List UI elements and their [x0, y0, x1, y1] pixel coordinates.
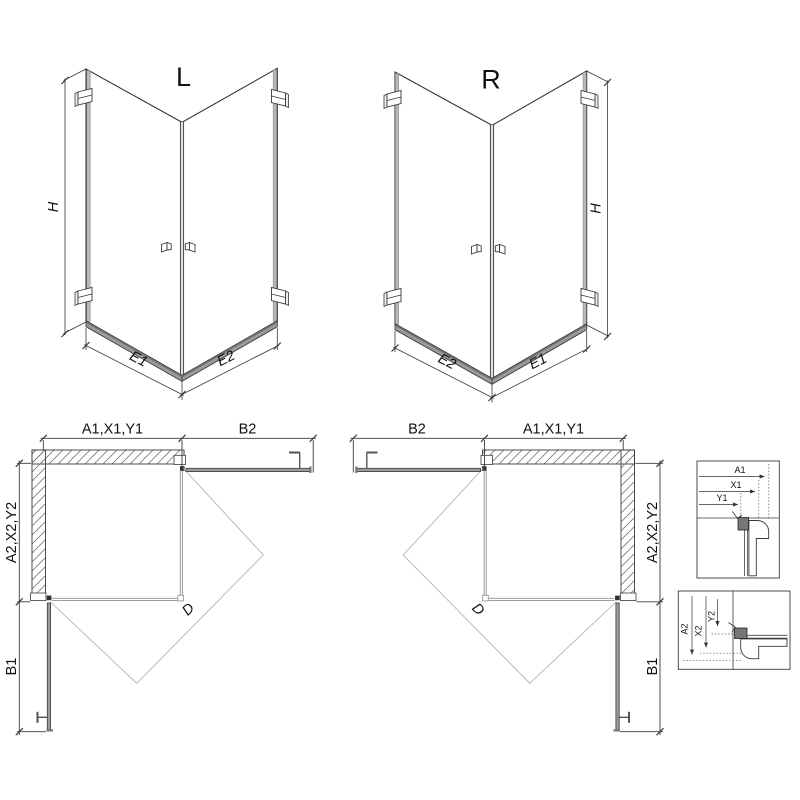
- dim-label-b1: B1: [4, 658, 20, 676]
- view-title-l: L: [176, 62, 191, 92]
- detail-label-y2: Y2: [707, 611, 717, 622]
- wall-right: [621, 450, 635, 597]
- wall-end-cap: [621, 593, 637, 601]
- dim-label-b2: B2: [408, 422, 426, 438]
- iso-right-view: R H E2 E1: [384, 65, 611, 403]
- door-closed-bottom: [489, 598, 615, 600]
- dim-label-h: H: [46, 201, 62, 212]
- corner-seam-profile: [181, 122, 184, 378]
- wall-top: [32, 450, 184, 464]
- door-corner-block: [483, 595, 489, 601]
- view-title-r: R: [481, 65, 501, 95]
- detail-box-top: A1 X1 Y1: [697, 461, 779, 578]
- open-door-b2-endcap: [355, 467, 357, 474]
- wall-end-cap: [31, 593, 47, 601]
- extension-line: [587, 71, 609, 83]
- detail-label-a1: A1: [734, 465, 745, 475]
- wall-profile-left: [395, 74, 398, 325]
- door-handle-b2: [289, 453, 300, 469]
- door-handle-b2: [367, 453, 378, 469]
- door-closed-left: [484, 471, 486, 597]
- open-door-b1-endcap: [614, 729, 621, 731]
- door-closed-bottom: [52, 598, 178, 600]
- plan-left-view: A1,X1,Y1 B2 A2,X2,Y2 B1 D: [4, 422, 317, 736]
- door-handle-b1: [38, 712, 49, 723]
- wall-left: [32, 450, 46, 597]
- wall-top: [483, 450, 635, 464]
- door-pivot: [615, 596, 620, 601]
- clamp-bracket: [735, 628, 748, 639]
- open-door-b1-endcap: [47, 729, 54, 731]
- technical-drawing: L H E1 E2: [0, 0, 800, 800]
- dim-label-b2: B2: [239, 422, 257, 438]
- wall-end-cap: [481, 455, 493, 464]
- open-door-b1: [47, 603, 50, 731]
- plan-right-view: B2 A1,X1,Y1 A2,X2,Y2 B1 D: [350, 422, 664, 736]
- open-door-b1: [616, 603, 619, 731]
- door-swing-outline: [403, 468, 616, 683]
- iso-left-view: L H E1 E2: [46, 62, 289, 400]
- door-swing-outline: [50, 468, 263, 683]
- detail-box-bottom: A2 X2 Y2: [678, 591, 790, 669]
- wall-profile-right: [273, 70, 276, 321]
- wall-profile-right: [583, 72, 586, 324]
- open-door-b2: [356, 468, 481, 471]
- clamp-bracket: [738, 518, 749, 531]
- open-door-b2: [186, 468, 311, 471]
- open-door-b2-endcap: [309, 467, 311, 474]
- door-corner-block: [178, 595, 184, 601]
- dim-label-b1: B1: [645, 658, 661, 676]
- dim-label-h: H: [589, 203, 605, 214]
- dim-label-a1x1y1: A1,X1,Y1: [82, 422, 143, 438]
- extension-line: [587, 325, 609, 337]
- detail-label-y1: Y1: [716, 493, 727, 503]
- door-closed-right: [180, 471, 182, 597]
- wall-end-cap: [174, 455, 186, 464]
- detail-label-x1: X1: [730, 480, 741, 490]
- door-pivot: [47, 596, 52, 601]
- dim-label-a2x2y2: A2,X2,Y2: [645, 502, 661, 563]
- dim-label-a2x2y2: A2,X2,Y2: [4, 502, 20, 563]
- corner-seam-profile: [491, 125, 494, 381]
- dim-label-d: D: [468, 600, 487, 619]
- dim-label-a1x1y1: A1,X1,Y1: [523, 422, 584, 438]
- detail-label-a2: A2: [680, 623, 690, 634]
- door-handle-b1: [619, 712, 630, 723]
- detail-label-x2: X2: [694, 625, 704, 636]
- wall-profile-left: [87, 71, 90, 322]
- dim-label-d: D: [179, 600, 198, 619]
